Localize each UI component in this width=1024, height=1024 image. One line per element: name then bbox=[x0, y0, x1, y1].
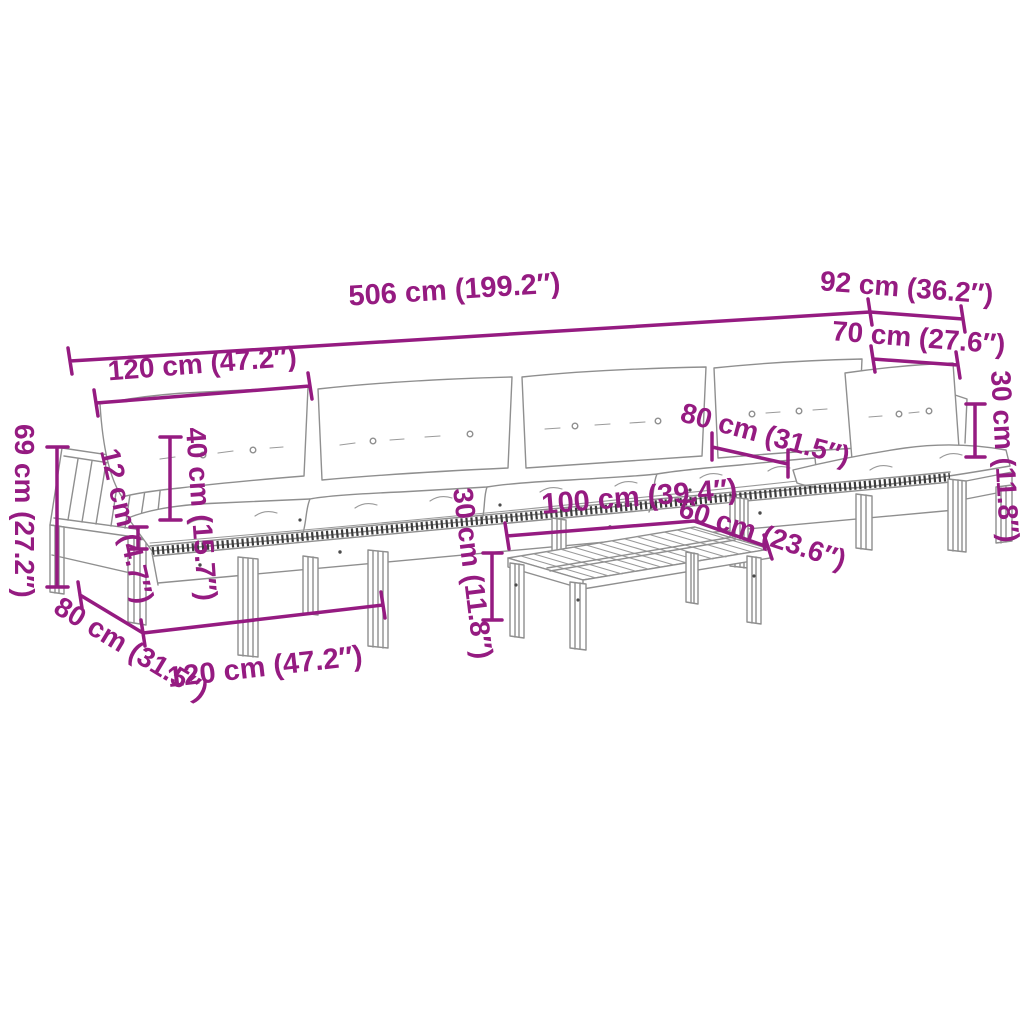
back-cushion-3 bbox=[522, 367, 706, 468]
dim-module-length-bottom-label: 120 cm (47.2″) bbox=[166, 640, 364, 694]
dimension-module-length-bottom: 120 cm (47.2″) bbox=[143, 592, 385, 694]
coffee-table bbox=[508, 527, 770, 650]
dim-corner-back-height-label: 30 cm (11.8″) bbox=[985, 370, 1024, 544]
dim-overall-height-label: 69 cm (27.2″) bbox=[9, 424, 40, 598]
dimension-corner-back-height: 30 cm (11.8″) bbox=[966, 370, 1024, 544]
product-dimension-diagram: 506 cm (199.2″) 92 cm (36.2″) 70 cm (27.… bbox=[0, 0, 1024, 1024]
dim-corner-seat-width-label: 70 cm (27.6″) bbox=[831, 315, 1007, 360]
dim-overall-length-label: 506 cm (199.2″) bbox=[348, 267, 562, 312]
dim-module-length-top-label: 120 cm (47.2″) bbox=[107, 341, 298, 387]
diagram-canvas: 506 cm (199.2″) 92 cm (36.2″) 70 cm (27.… bbox=[0, 0, 1024, 1024]
dim-corner-depth-label: 92 cm (36.2″) bbox=[819, 265, 995, 310]
back-cushion-2 bbox=[318, 377, 512, 480]
dimension-backrest-height: 40 cm (15.7″) bbox=[160, 426, 223, 601]
